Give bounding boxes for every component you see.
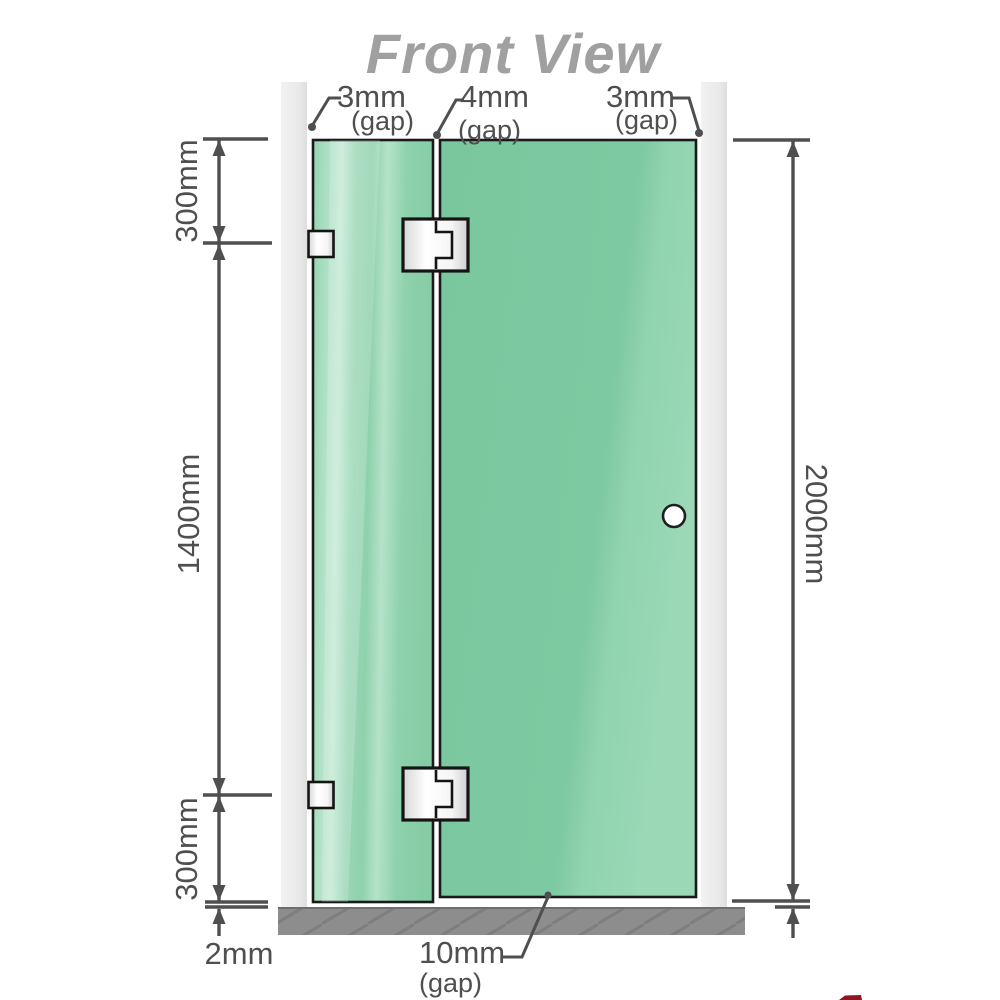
floor-base [278, 907, 745, 935]
gap-unit-top-right: (gap) [615, 105, 678, 135]
glass-panels [313, 140, 696, 902]
door-knob [663, 505, 685, 527]
gap-unit-bottom: (gap) [419, 968, 482, 998]
dim-label-2000mm: 2000mm [799, 464, 834, 585]
dim-label-top-300mm: 300mm [169, 139, 204, 242]
gap-unit-top-left: (gap) [351, 106, 414, 136]
right-dimension-lines [732, 140, 810, 938]
red-watermark [839, 995, 862, 1000]
right-wall-channel [701, 82, 727, 907]
dim-label-1400mm: 1400mm [171, 454, 206, 575]
dim-label-2mm: 2mm [205, 936, 274, 971]
page-title: Front View [366, 22, 663, 85]
gap-unit-top-middle: (gap) [458, 115, 521, 145]
wall-bracket-top [309, 231, 334, 257]
hinge-bottom [403, 768, 468, 820]
wall-bracket-bottom [309, 782, 334, 808]
hinge-top [403, 219, 468, 271]
front-view-diagram: 300mm 1400mm 300mm 2mm 2000mm 3mm (gap) … [0, 0, 1000, 1000]
dim-label-bottom-300mm: 300mm [169, 797, 204, 900]
gap-label-bottom: 10mm [419, 935, 505, 970]
left-wall-channel [281, 82, 307, 907]
door-panel-glass [440, 140, 696, 897]
diagram-canvas: 300mm 1400mm 300mm 2mm 2000mm 3mm (gap) … [0, 0, 1000, 1000]
